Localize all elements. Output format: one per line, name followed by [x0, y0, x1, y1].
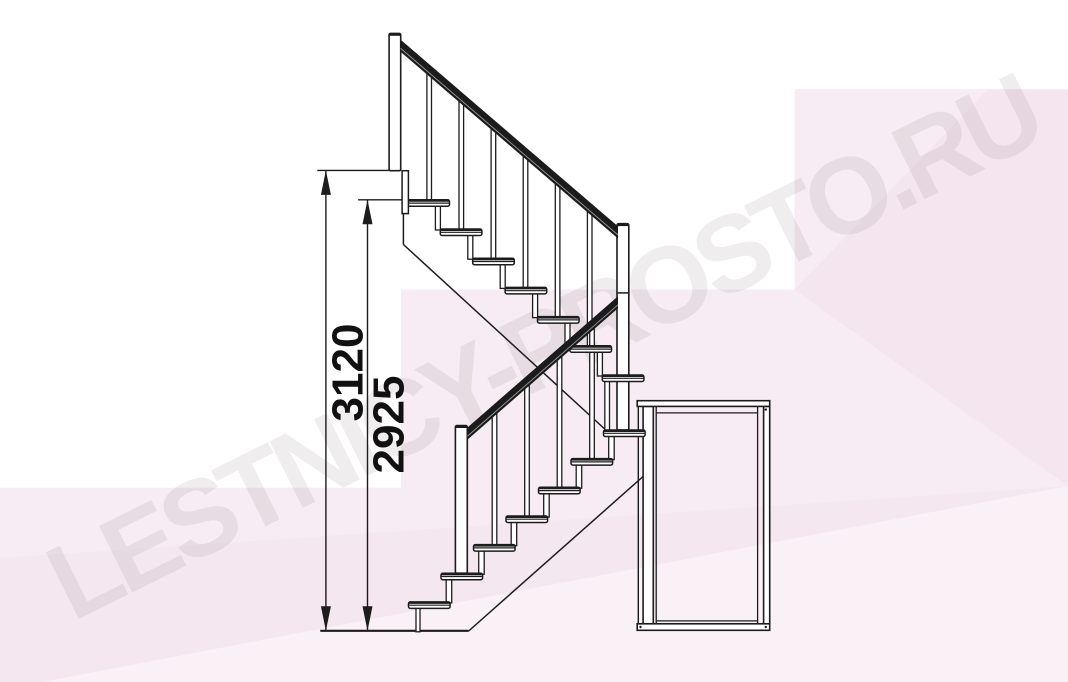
svg-text:2925: 2925 — [365, 376, 414, 474]
